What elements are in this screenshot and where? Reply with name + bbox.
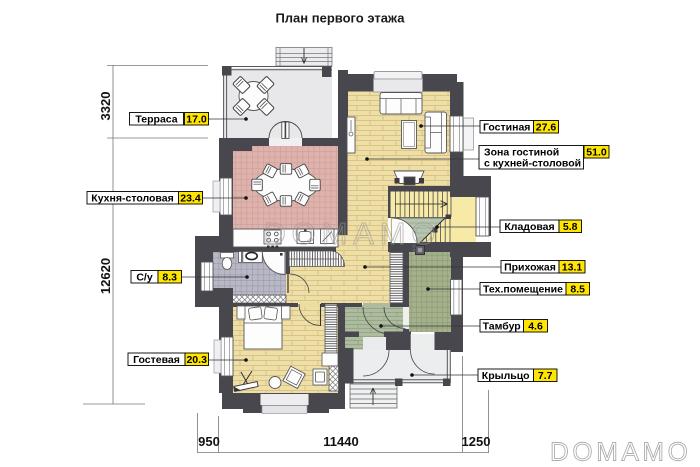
svg-text:8.3: 8.3	[162, 272, 177, 284]
svg-text:Тех.помещение: Тех.помещение	[483, 284, 563, 296]
svg-text:с кухней-столовой: с кухней-столовой	[484, 158, 581, 170]
svg-text:20.3: 20.3	[186, 354, 207, 366]
svg-text:DOMAMO: DOMAMO	[550, 437, 691, 467]
svg-text:13.1: 13.1	[562, 262, 583, 274]
svg-text:950: 950	[198, 434, 220, 449]
svg-text:С/у: С/у	[136, 272, 153, 284]
svg-text:1250: 1250	[462, 434, 491, 449]
svg-text:51.0: 51.0	[586, 147, 607, 159]
svg-text:План первого этажа: План первого этажа	[275, 11, 405, 26]
svg-text:17.0: 17.0	[186, 114, 207, 126]
svg-text:Кладовая: Кладовая	[504, 221, 554, 233]
svg-text:11440: 11440	[323, 434, 358, 449]
svg-text:5.8: 5.8	[563, 221, 578, 233]
svg-text:Тамбур: Тамбур	[483, 321, 521, 333]
svg-text:3320: 3320	[98, 92, 113, 121]
svg-text:7.7: 7.7	[538, 370, 553, 382]
svg-text:Кухня-столовая: Кухня-столовая	[91, 193, 173, 205]
svg-text:Гостиная: Гостиная	[483, 122, 530, 134]
svg-text:DOMAMO: DOMAMO	[264, 216, 442, 251]
svg-text:4.6: 4.6	[528, 321, 543, 333]
svg-text:Гостевая: Гостевая	[133, 354, 180, 366]
svg-text:12620: 12620	[98, 258, 113, 294]
svg-text:27.6: 27.6	[536, 122, 557, 134]
svg-text:Прихожая: Прихожая	[504, 262, 556, 274]
svg-text:Крыльцо: Крыльцо	[482, 370, 530, 382]
svg-text:23.4: 23.4	[180, 193, 201, 205]
svg-text:Терраса: Терраса	[135, 114, 177, 126]
svg-text:8.5: 8.5	[570, 284, 585, 296]
